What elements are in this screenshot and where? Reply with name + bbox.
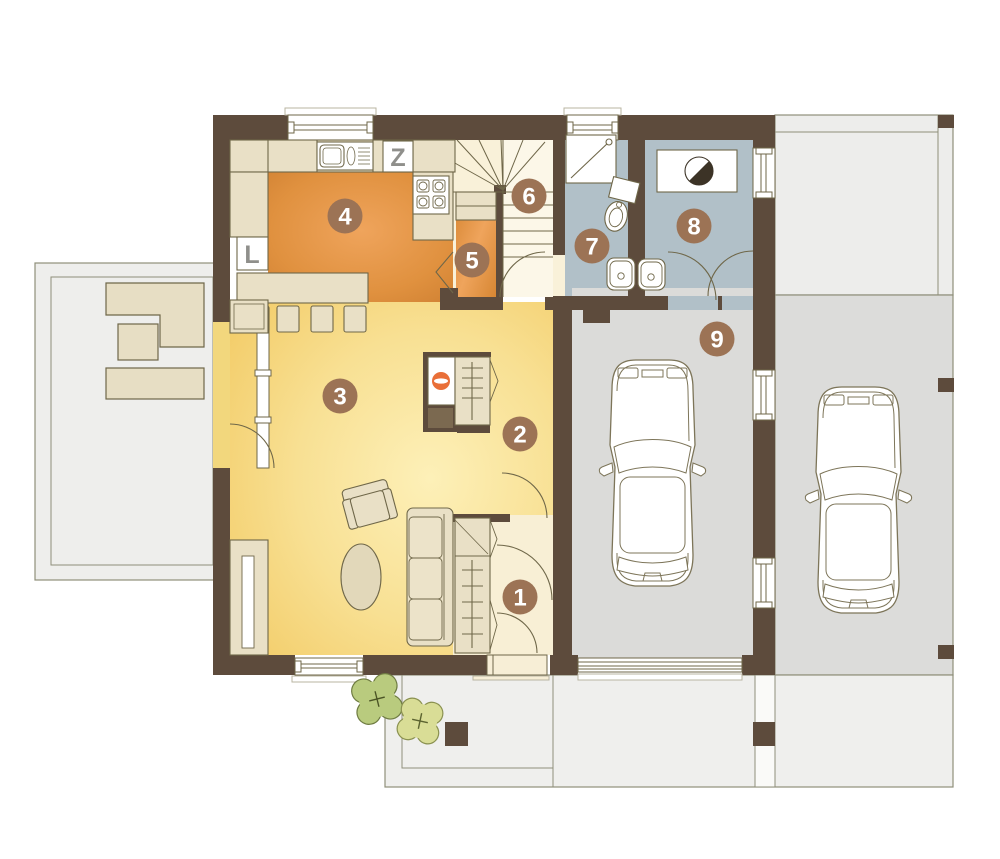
terrace-table — [118, 324, 158, 360]
terrace — [35, 263, 225, 580]
pantry-shelf — [456, 192, 496, 220]
pillar — [938, 645, 954, 659]
room-badge-stairs: 6 — [512, 179, 547, 214]
terrace-furniture — [106, 283, 204, 399]
room-number: 6 — [522, 184, 535, 211]
room-number: 4 — [338, 204, 352, 231]
room-badge-hall: 2 — [503, 417, 538, 452]
kitchen-sink — [317, 142, 373, 170]
room-badge-utility-room: 8 — [677, 209, 712, 244]
pillar — [938, 378, 954, 392]
pouf — [341, 544, 381, 610]
garage-door — [578, 658, 742, 680]
car-carport — [805, 387, 911, 613]
utility-window — [753, 148, 775, 198]
fridge-label: L — [244, 241, 259, 269]
room-badge-garage: 9 — [700, 322, 735, 357]
dining-bar — [237, 273, 368, 303]
kitchen-window — [285, 108, 376, 140]
room-number: 3 — [333, 384, 346, 411]
pillar — [753, 722, 775, 746]
kitchen-counter-left — [230, 172, 268, 237]
room-number: 9 — [710, 327, 723, 354]
terrace-bench — [106, 368, 204, 399]
sideboard — [230, 540, 268, 655]
room-badge-kitchen: 4 — [328, 199, 363, 234]
chair — [311, 306, 333, 332]
pillar — [938, 115, 954, 128]
sofa — [407, 508, 453, 646]
stove — [413, 176, 449, 214]
terrace-door-recess — [213, 322, 230, 468]
room-number: 5 — [465, 248, 478, 275]
washbasin — [607, 258, 635, 290]
room-badge-entry-hall: 1 — [503, 580, 538, 615]
door-gap-fill — [722, 296, 753, 310]
chair — [277, 306, 299, 332]
fireplace — [428, 357, 455, 405]
driveway — [385, 675, 953, 787]
garage-window — [753, 558, 775, 608]
wall-shelf — [230, 300, 268, 333]
room-badge-living-room: 3 — [323, 379, 358, 414]
room-badge-bathroom: 7 — [575, 229, 610, 264]
tree — [395, 696, 445, 746]
room-number: 8 — [687, 214, 700, 241]
shower — [566, 135, 616, 183]
car-garage — [599, 360, 705, 586]
door-gap-fill — [553, 255, 565, 296]
room-badge-pantry: 5 — [455, 243, 490, 278]
floor-plan-canvas: 123456789 ZL — [0, 0, 1000, 859]
carport-patio — [775, 115, 953, 295]
freezer-label: Z — [390, 144, 405, 172]
room-number: 1 — [513, 585, 526, 612]
chair — [344, 306, 366, 332]
room-number: 7 — [585, 234, 598, 261]
living-window — [292, 658, 366, 682]
garage-window — [753, 370, 775, 420]
boiler — [657, 150, 737, 192]
room-number: 2 — [513, 422, 526, 449]
washbasin — [638, 259, 665, 290]
door-gap-fill — [668, 296, 718, 310]
floor-plan: 123456789 ZL — [0, 0, 1000, 859]
pillar — [445, 722, 468, 746]
